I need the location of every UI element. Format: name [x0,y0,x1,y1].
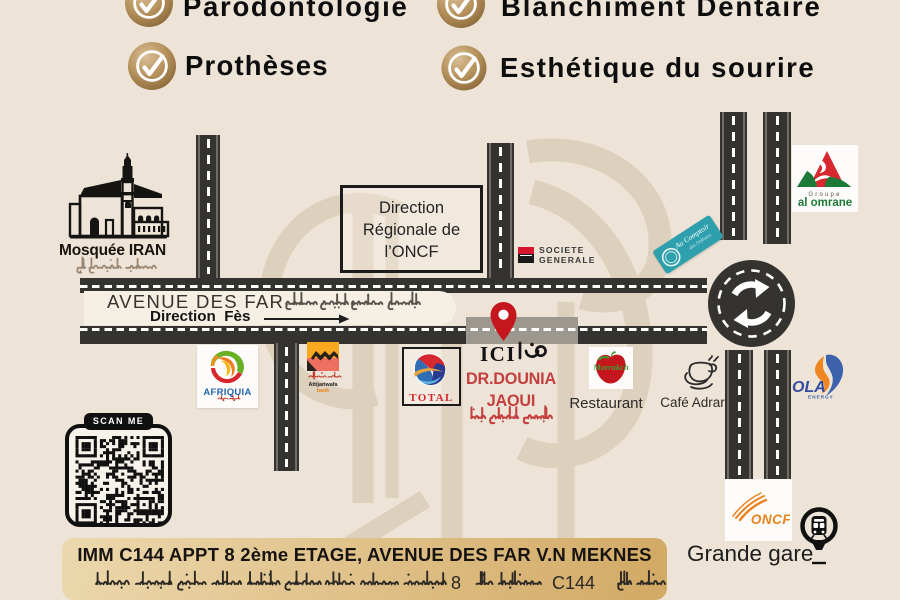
svg-text:8: 8 [451,573,461,593]
svg-text:C144: C144 [552,573,595,593]
